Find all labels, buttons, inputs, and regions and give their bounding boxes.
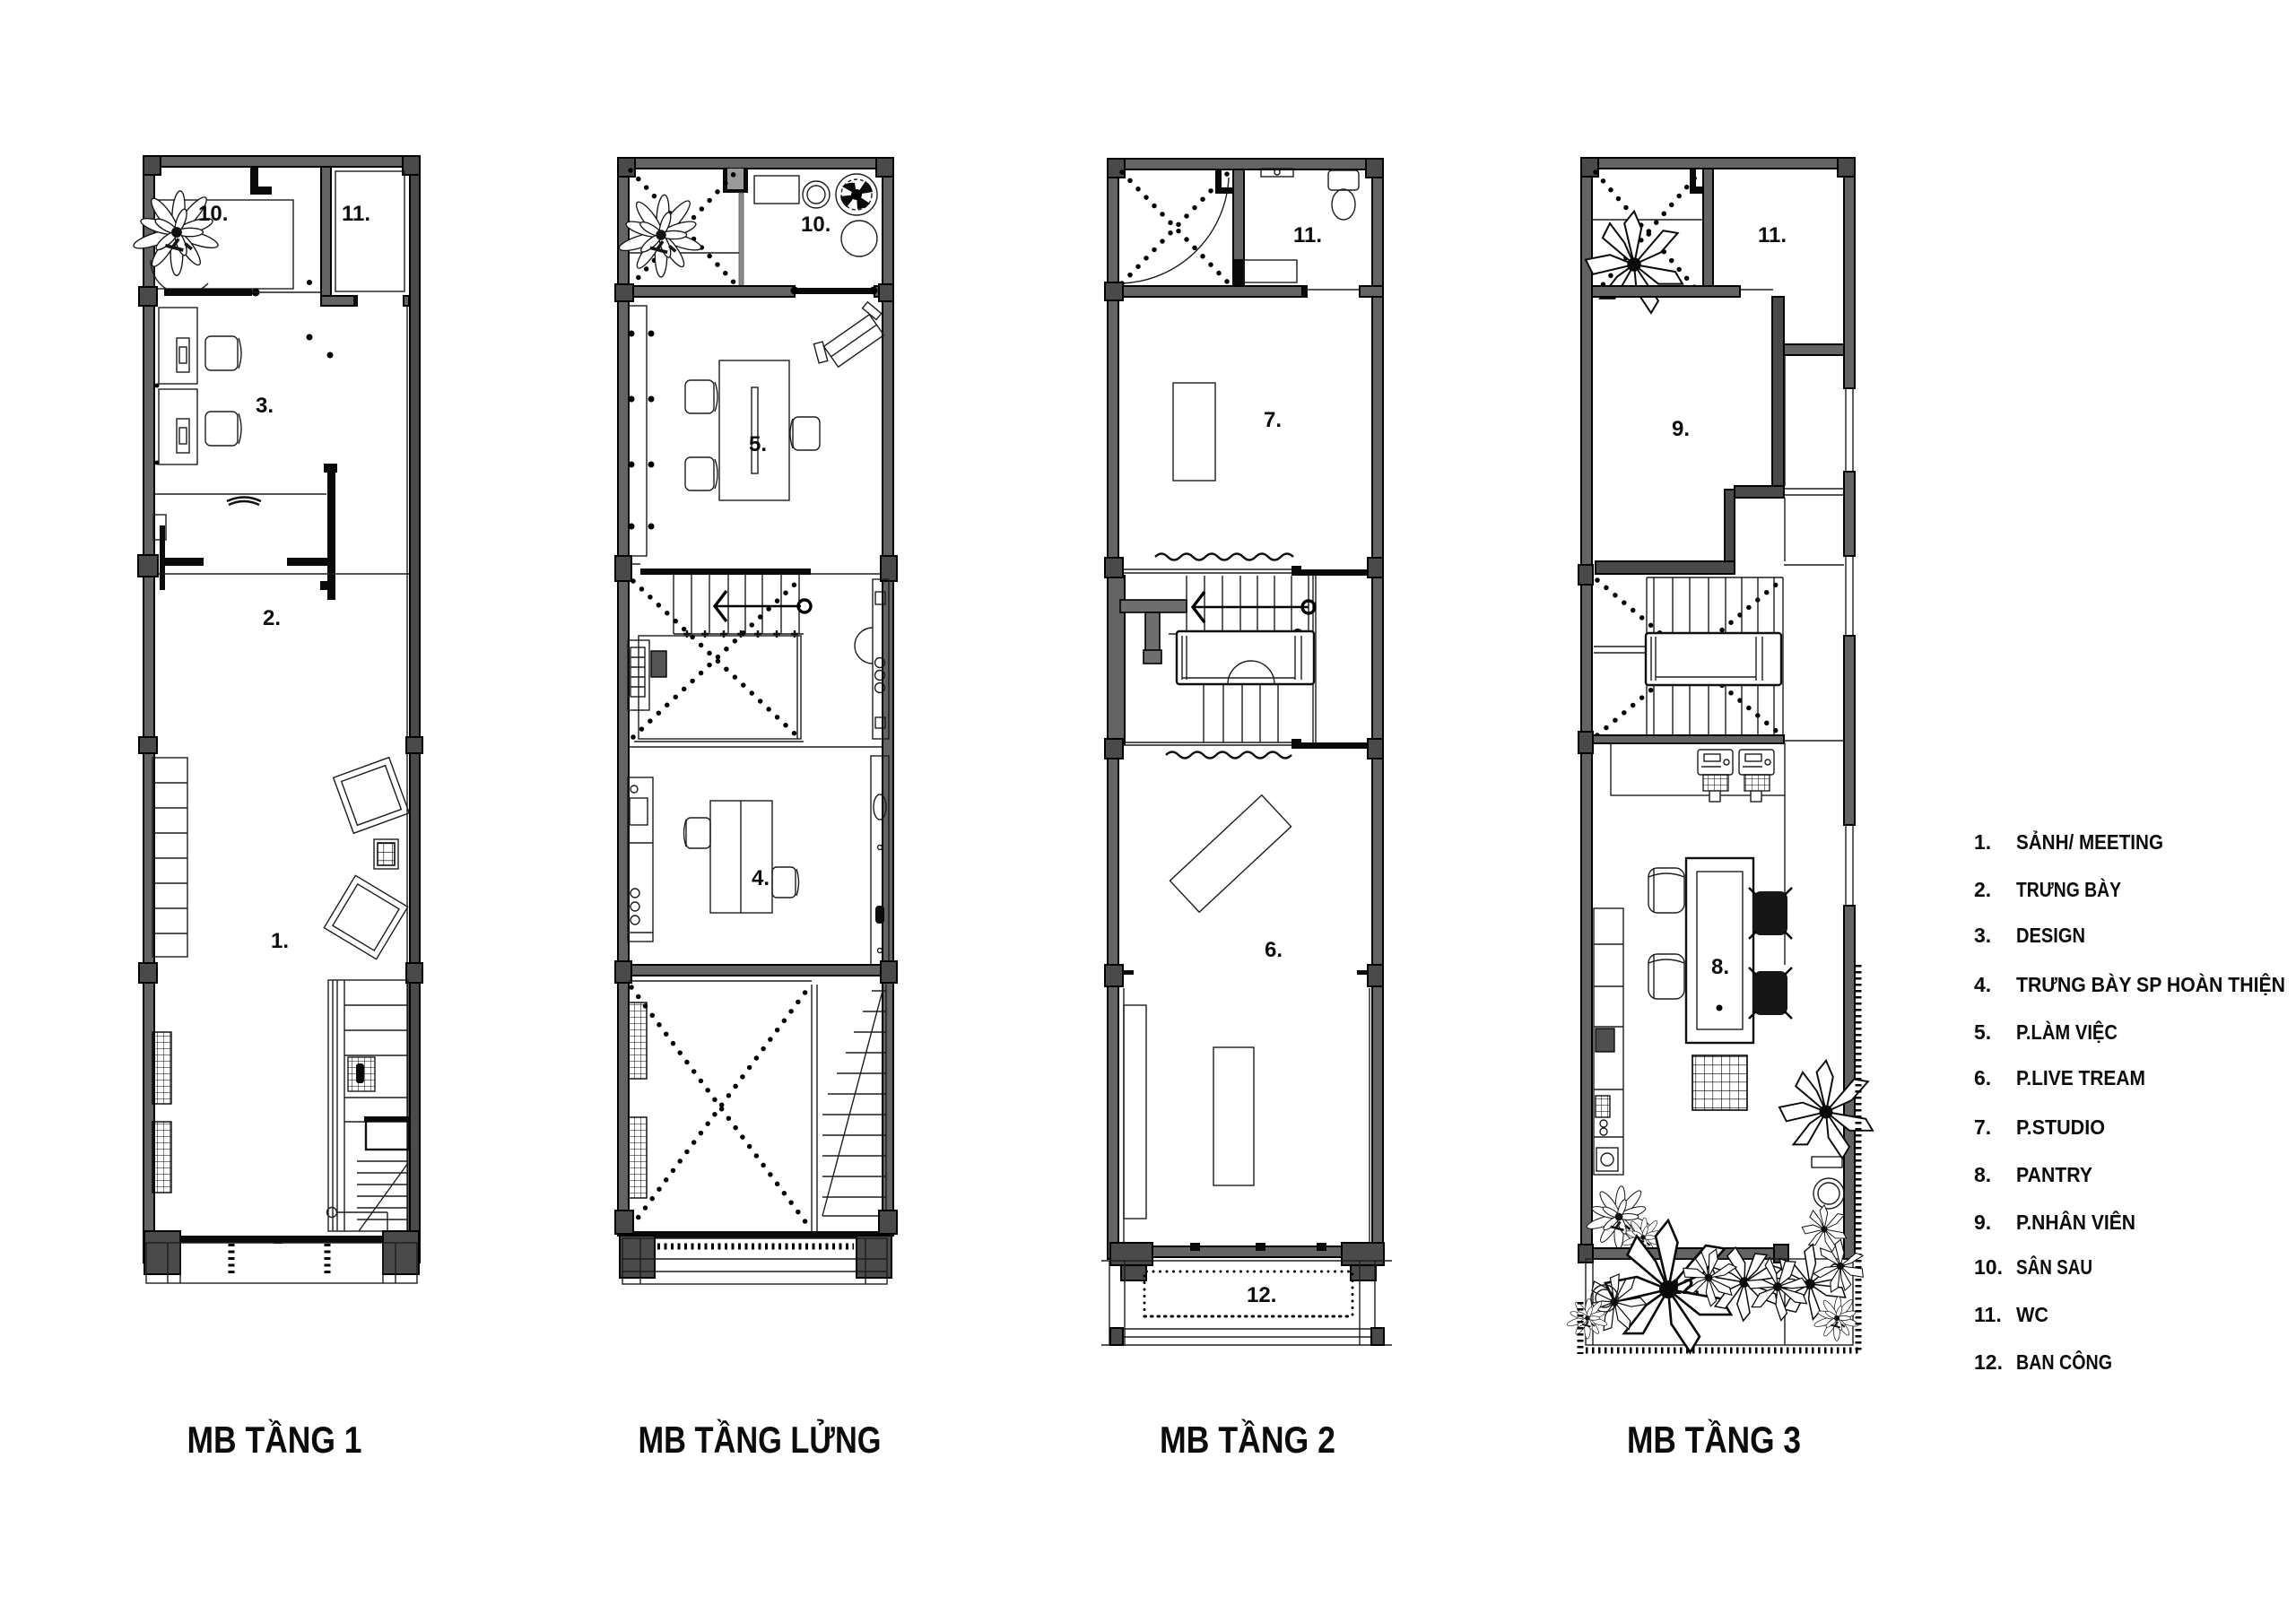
svg-text:2.: 2. (1974, 878, 1991, 901)
svg-text:P.NHÂN VIÊN: P.NHÂN VIÊN (2016, 1210, 2135, 1234)
svg-text:9.: 9. (1672, 417, 1690, 441)
svg-text:7.: 7. (1974, 1115, 1991, 1139)
svg-text:6.: 6. (1974, 1066, 1991, 1089)
svg-text:BAN CÔNG: BAN CÔNG (2016, 1350, 2112, 1374)
svg-text:MB TẦNG 2: MB TẦNG 2 (1160, 1419, 1335, 1461)
svg-text:1.: 1. (271, 929, 289, 953)
svg-text:12.: 12. (1247, 1283, 1276, 1307)
svg-text:7.: 7. (1264, 408, 1282, 432)
svg-text:10.: 10. (1974, 1255, 2003, 1279)
svg-text:5.: 5. (749, 432, 767, 456)
svg-text:SÂN SAU: SÂN SAU (2016, 1254, 2092, 1279)
svg-text:8.: 8. (1711, 955, 1729, 979)
svg-text:WC: WC (2016, 1303, 2048, 1326)
svg-text:MB TẦNG 3: MB TẦNG 3 (1627, 1419, 1801, 1461)
svg-text:6.: 6. (1265, 938, 1283, 962)
svg-text:1.: 1. (1974, 830, 1991, 854)
svg-text:P.STUDIO: P.STUDIO (2016, 1115, 2105, 1139)
svg-text:2.: 2. (263, 606, 281, 630)
svg-text:MB TẦNG 1: MB TẦNG 1 (187, 1419, 362, 1461)
svg-text:11.: 11. (1293, 223, 1322, 247)
svg-text:8.: 8. (1974, 1163, 1991, 1186)
svg-text:10.: 10. (801, 213, 831, 237)
svg-text:11.: 11. (342, 202, 370, 226)
svg-text:TRƯNG BÀY: TRƯNG BÀY (2016, 877, 2121, 901)
svg-text:3.: 3. (256, 394, 274, 418)
svg-text:DESIGN: DESIGN (2016, 924, 2085, 947)
svg-text:11.: 11. (1758, 223, 1787, 247)
svg-text:4.: 4. (1974, 973, 1991, 996)
svg-text:SẢNH/ MEETING: SẢNH/ MEETING (2016, 829, 2163, 854)
svg-text:9.: 9. (1974, 1211, 1991, 1234)
svg-text:3.: 3. (1974, 924, 1991, 947)
svg-text:4.: 4. (752, 866, 770, 890)
svg-text:P.LÀM VIỆC: P.LÀM VIỆC (2016, 1020, 2118, 1044)
svg-text:P.LIVE TREAM: P.LIVE TREAM (2016, 1066, 2145, 1089)
svg-text:MB TẦNG LỬNG: MB TẦNG LỬNG (639, 1418, 882, 1461)
svg-text:PANTRY: PANTRY (2016, 1163, 2092, 1186)
svg-text:12.: 12. (1974, 1350, 2003, 1374)
svg-text:TRƯNG BÀY SP HOÀN THIỆN: TRƯNG BÀY SP HOÀN THIỆN (2016, 972, 2285, 996)
svg-text:10.: 10. (198, 202, 228, 226)
svg-text:11.: 11. (1974, 1303, 2002, 1326)
svg-text:5.: 5. (1974, 1020, 1991, 1044)
